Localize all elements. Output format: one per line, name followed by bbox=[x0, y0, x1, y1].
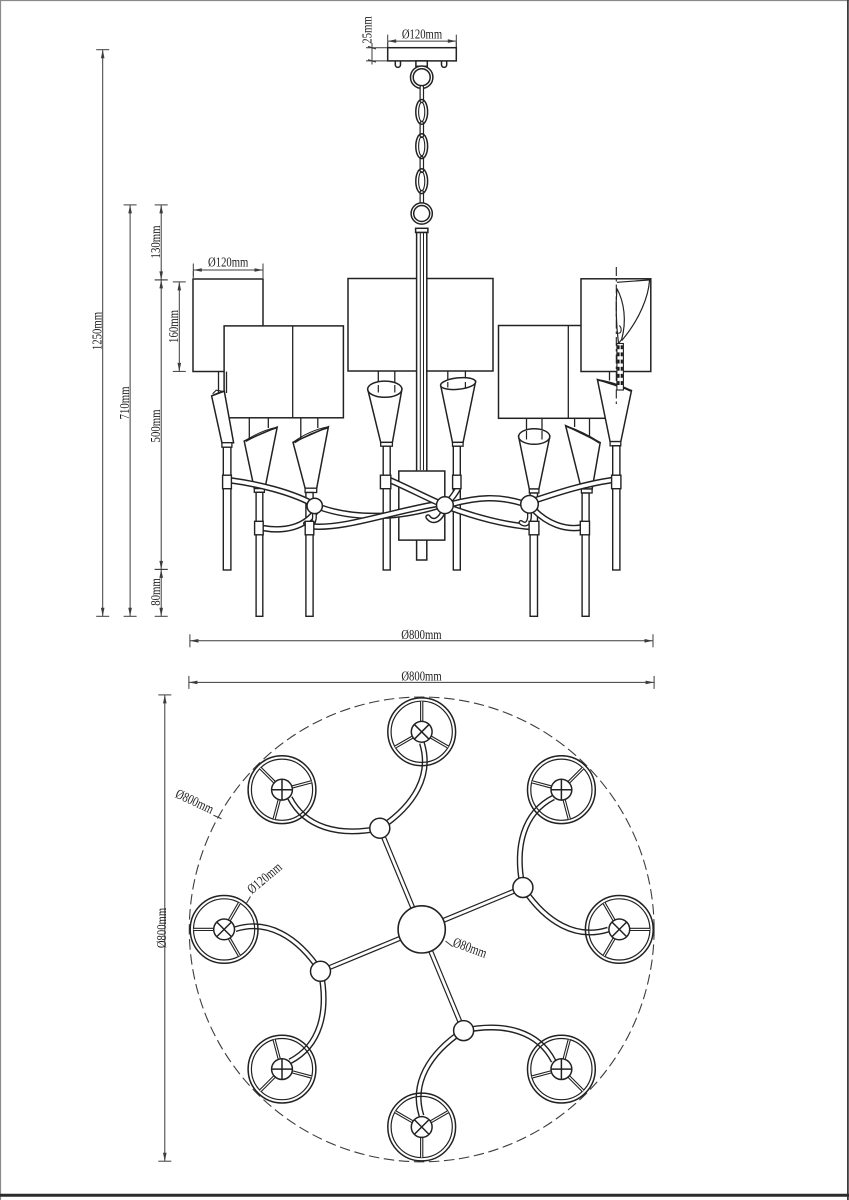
svg-text:25mm: 25mm bbox=[361, 16, 376, 44]
svg-text:710mm: 710mm bbox=[118, 386, 133, 419]
svg-text:Ø120mm: Ø120mm bbox=[402, 28, 442, 43]
svg-text:Ø800mm: Ø800mm bbox=[401, 628, 441, 643]
svg-text:Ø800mm: Ø800mm bbox=[401, 669, 441, 684]
svg-text:Ø120mm: Ø120mm bbox=[208, 256, 248, 271]
svg-text:80mm: 80mm bbox=[149, 578, 164, 606]
svg-text:160mm: 160mm bbox=[167, 310, 182, 343]
svg-text:500mm: 500mm bbox=[149, 409, 164, 442]
svg-text:Ø800mm: Ø800mm bbox=[155, 908, 170, 948]
svg-text:1250mm: 1250mm bbox=[91, 312, 106, 350]
svg-text:130mm: 130mm bbox=[149, 225, 164, 258]
